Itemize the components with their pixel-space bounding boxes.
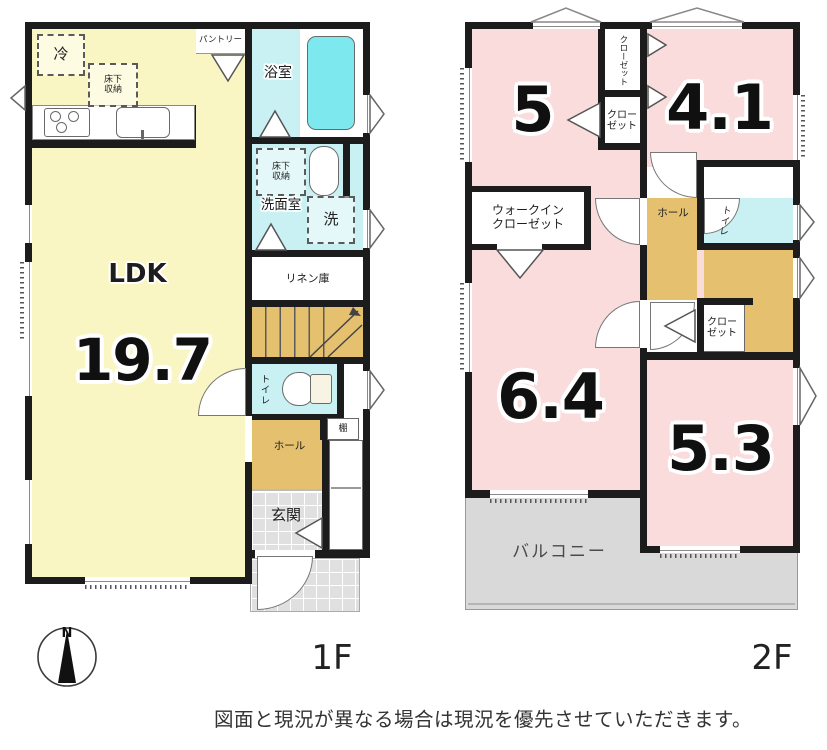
wall	[697, 243, 800, 250]
folding-door-icon	[648, 34, 666, 56]
wall	[697, 160, 800, 167]
closet-top-label: クローゼット	[611, 31, 633, 89]
folding-door-icon	[497, 250, 543, 278]
bay-window-icon	[531, 8, 601, 22]
walk-in-closet-label: ウォークイン クローゼット	[472, 196, 584, 240]
wall	[465, 22, 800, 29]
door-opening	[640, 300, 647, 348]
room-6-4-size-label: 6.4	[468, 356, 633, 438]
balcony-label: バルコニー	[492, 540, 627, 566]
sliding-door-icon	[665, 310, 695, 342]
window	[793, 205, 800, 240]
window	[533, 22, 600, 29]
window	[652, 22, 742, 29]
shutter-window-hatch	[460, 68, 464, 162]
wall	[584, 186, 591, 250]
window	[793, 258, 800, 298]
disclaimer-text: 図面と現況が異なる場合は現況を優先させていただきます。	[214, 703, 814, 732]
floor2-caption: 2F	[732, 638, 812, 678]
window	[660, 546, 740, 553]
floorplan-canvas: パントリー 冷 床下 収納 床下 収納 洗 LDK 19.7 浴室 洗面室 リネ…	[0, 0, 827, 750]
wall	[647, 352, 793, 360]
compass-north-icon: N	[32, 622, 102, 692]
bay-window-icon	[650, 8, 744, 22]
room-4-1-size-label: 4.1	[637, 68, 802, 148]
window-sill-hatch	[490, 499, 588, 503]
window	[490, 490, 588, 498]
room-5-size-label: 5	[480, 70, 585, 150]
closet-mid-label: クロー ゼット	[600, 100, 644, 142]
shutter-window-hatch	[460, 283, 464, 372]
room-5-3-size-label: 5.3	[638, 408, 803, 490]
window-swing-icon	[800, 205, 814, 240]
window-swing-icon	[800, 258, 814, 298]
hall-2f-label: ホール	[644, 205, 702, 221]
closet-low-label: クロー ゼット	[700, 306, 744, 350]
wall	[697, 298, 753, 305]
wall	[472, 186, 590, 192]
floor2-plan: 5 4.1 6.4 5.3 クローゼット クロー ゼット ウォークイン クローゼ…	[0, 0, 827, 750]
balcony-rail-line	[468, 603, 795, 605]
balcony	[642, 553, 798, 610]
window	[465, 68, 472, 162]
window-sill-hatch	[660, 554, 740, 558]
compass-north-label: N	[62, 626, 73, 641]
floor1-caption: 1F	[292, 638, 372, 678]
